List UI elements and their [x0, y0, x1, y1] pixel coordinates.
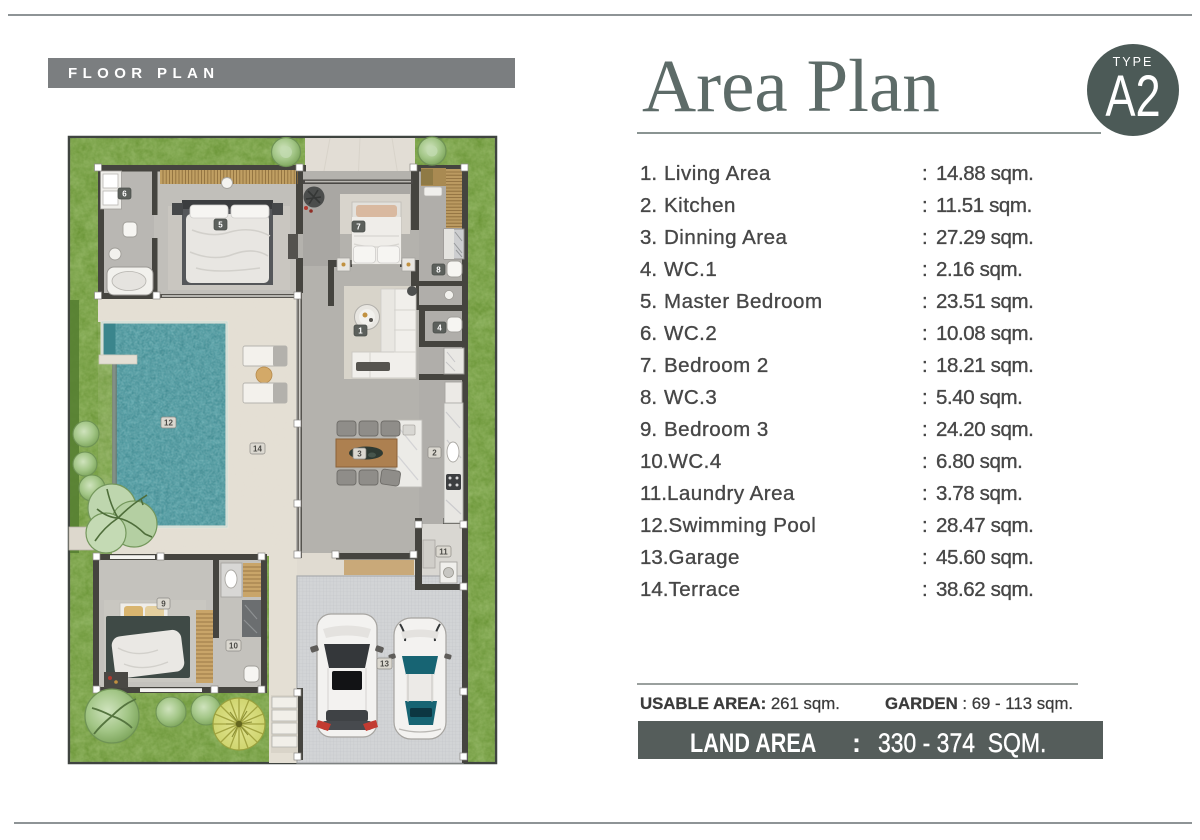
svg-text:4: 4 [437, 324, 442, 333]
svg-text:10: 10 [229, 642, 238, 651]
svg-text:5: 5 [218, 221, 223, 230]
svg-text:13: 13 [380, 660, 389, 669]
svg-text:2: 2 [432, 449, 437, 458]
svg-text:7: 7 [356, 223, 361, 232]
svg-text:11: 11 [439, 548, 448, 557]
svg-text:9: 9 [161, 600, 166, 609]
svg-text:14: 14 [253, 445, 262, 454]
svg-text:1: 1 [358, 327, 363, 336]
svg-text:12: 12 [164, 419, 173, 428]
svg-text:6: 6 [122, 190, 127, 199]
svg-text:3: 3 [357, 450, 362, 459]
svg-text:8: 8 [436, 266, 441, 275]
